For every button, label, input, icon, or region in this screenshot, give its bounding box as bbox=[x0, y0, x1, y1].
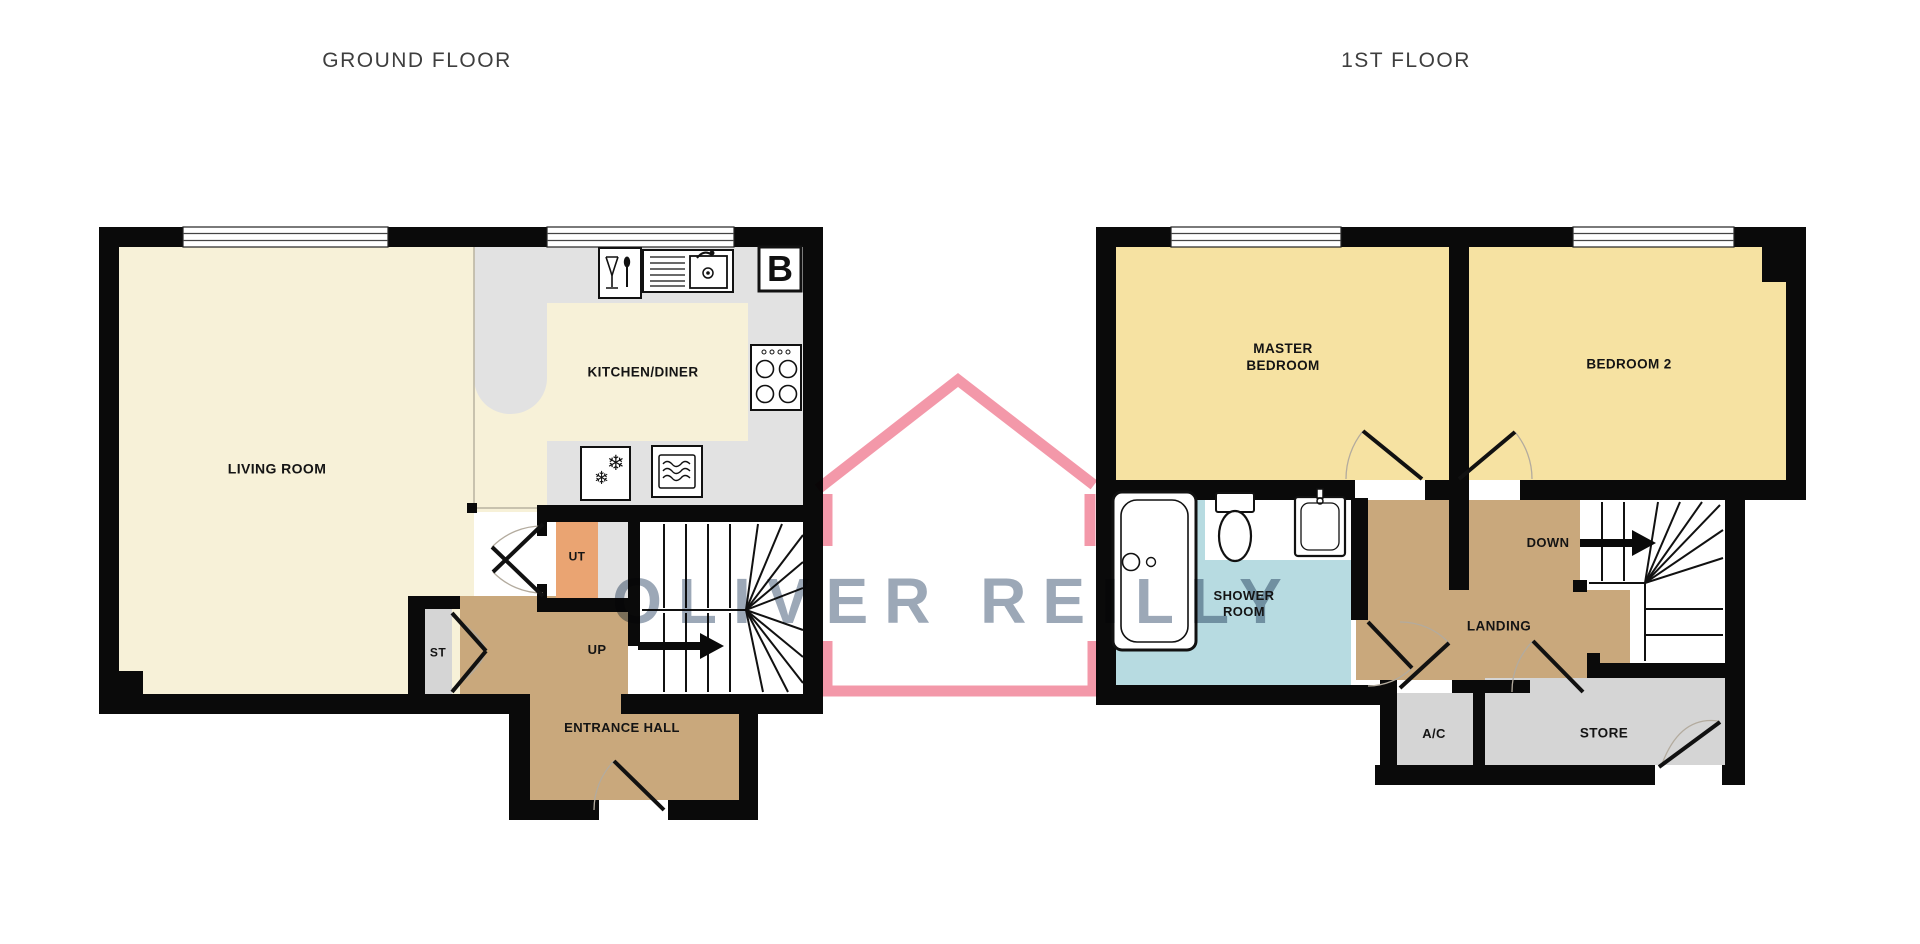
kitchen-diner-label: KITCHEN/DINER bbox=[588, 365, 699, 382]
up-label: UP bbox=[588, 642, 607, 658]
floorplan-canvas: B ❄ ❄ bbox=[0, 0, 1920, 944]
first-floor-title: 1ST FLOOR bbox=[1341, 49, 1471, 73]
storage-label: ST bbox=[430, 646, 446, 661]
shower-room-label: SHOWER ROOM bbox=[1199, 588, 1289, 621]
landing-label: LANDING bbox=[1467, 619, 1531, 636]
ground-floor-title: GROUND FLOOR bbox=[322, 49, 512, 73]
watermark-brand: OLIVER REILLY bbox=[612, 564, 1298, 638]
utility-label: UT bbox=[569, 550, 586, 565]
airing-cupboard-label: A/C bbox=[1422, 726, 1446, 742]
living-room-label: LIVING ROOM bbox=[228, 460, 327, 478]
store-label: STORE bbox=[1580, 726, 1628, 743]
bedroom2-label: BEDROOM 2 bbox=[1579, 357, 1679, 374]
master-bedroom-label: MASTER BEDROOM bbox=[1228, 341, 1338, 375]
down-label: DOWN bbox=[1527, 535, 1570, 551]
entrance-hall-label: ENTRANCE HALL bbox=[562, 720, 682, 736]
